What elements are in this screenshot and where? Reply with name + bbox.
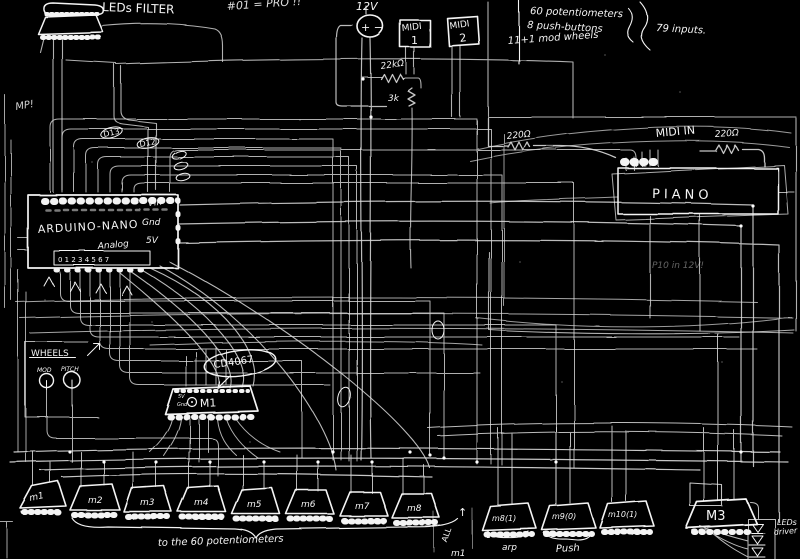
led-driver-label-2: driver [773,526,798,537]
led-diode-symbols [749,524,765,557]
button-mux-pins [486,532,650,534]
mod-wheel-label: MOD [37,367,52,374]
resistor-r4-value: 220Ω [715,128,740,140]
arp-group-label: arp [502,543,517,553]
mux-main-gnd: Gnd [177,402,188,408]
wire [10,448,788,477]
button-mux-label: m8(1) [492,514,516,523]
spec-item: 11+1 mod wheels [507,30,598,47]
wire [428,334,792,505]
pot-mux-label: m3 [140,498,155,508]
pot-mux-label: m7 [355,502,370,512]
mux-note-sub: m1 [451,549,466,559]
wheel-stems [47,380,72,390]
wire-tag-d12: D12 [139,137,157,149]
power-label: 12V [356,0,379,13]
components [20,0,788,557]
mux-main-5v: 5V [178,394,185,400]
faint-note: P10 in 12V! [652,261,704,271]
pitch-wheel-label: PITCH [61,366,79,373]
arduino-vin: Vin [147,198,162,209]
pot-mux-label: m6 [301,500,316,510]
pot-mux-label: m5 [247,500,262,510]
wire [336,6,386,460]
spec-total: 79 inputs. [656,23,707,37]
m3-label: M3 [706,509,726,524]
wire-bundle-mark [336,386,353,408]
midi1-name: MIDI [401,22,422,34]
wire [0,95,28,558]
midi-in-label: MIDI IN [655,124,695,140]
pot-mux-pins [24,512,436,523]
resistor-r3-value: 220Ω [506,130,531,142]
pot-mux-label: m8 [407,504,422,514]
midi2-name: MIDI [449,19,470,32]
wire [470,127,791,327]
wire [40,24,223,192]
spec-item: 60 potentiometers [530,6,623,20]
wire [60,272,757,500]
corner-note: MP! [15,99,35,113]
pot-mux-label: m2 [88,496,103,506]
push-group-label: Push [556,543,580,555]
arduino-analog-label: Analog [96,239,129,252]
button-mux-label: m9(0) [552,512,576,521]
cd4067-label: CD4067 [213,354,254,370]
button-mux-label: m10(1) [608,510,637,519]
mux-main-label: M1 [200,396,217,410]
schematic-sketch: MP! LEDs FILTER #01 = PRO !! 12V + − MID… [0,0,800,559]
resistor-r1-value: 22kΩ [380,59,405,72]
mux-main-dot-mark [191,401,193,403]
wire-bundle-mark [432,321,444,339]
wiring [0,2,796,559]
wire-tag-d13: D13 [103,127,121,139]
arduino-name: ARDUINO-NANO [37,218,138,236]
resistor-r2-value: 3k [388,94,400,104]
mux-note-text: ALL [440,526,454,543]
wire [50,119,636,468]
wire-bundle-mark [175,172,190,182]
wire [120,262,430,470]
wire [362,45,460,268]
wire [626,150,794,331]
piano-label: PIANO [652,187,713,203]
equation-note: #01 = PRO !! [226,0,301,13]
arduino-gnd: Gnd [142,218,161,228]
power-sign: + − [361,21,383,34]
led-filter-connector [38,15,103,34]
pots-brace-label: to the 60 potentiometers [158,534,284,549]
pot-mux-label: m4 [194,498,209,508]
leds-filter-label: LEDs FILTER [102,0,175,17]
arduino-analog-pins: 0 1 2 3 4 5 6 7 [58,256,109,264]
m3-feed-box [690,483,722,506]
arduino-5v: 5V [146,236,159,246]
sketch-canvas: MP! LEDs FILTER #01 = PRO !! 12V + − MID… [0,0,800,559]
wheels-title: WHEELS [31,349,69,359]
mux-note-arrow: ↑ [458,506,467,519]
midi2-num: 2 [459,31,468,45]
wire [16,297,793,345]
pot-mux-label: m1 [29,491,45,504]
midi1-num: 1 [411,34,418,47]
